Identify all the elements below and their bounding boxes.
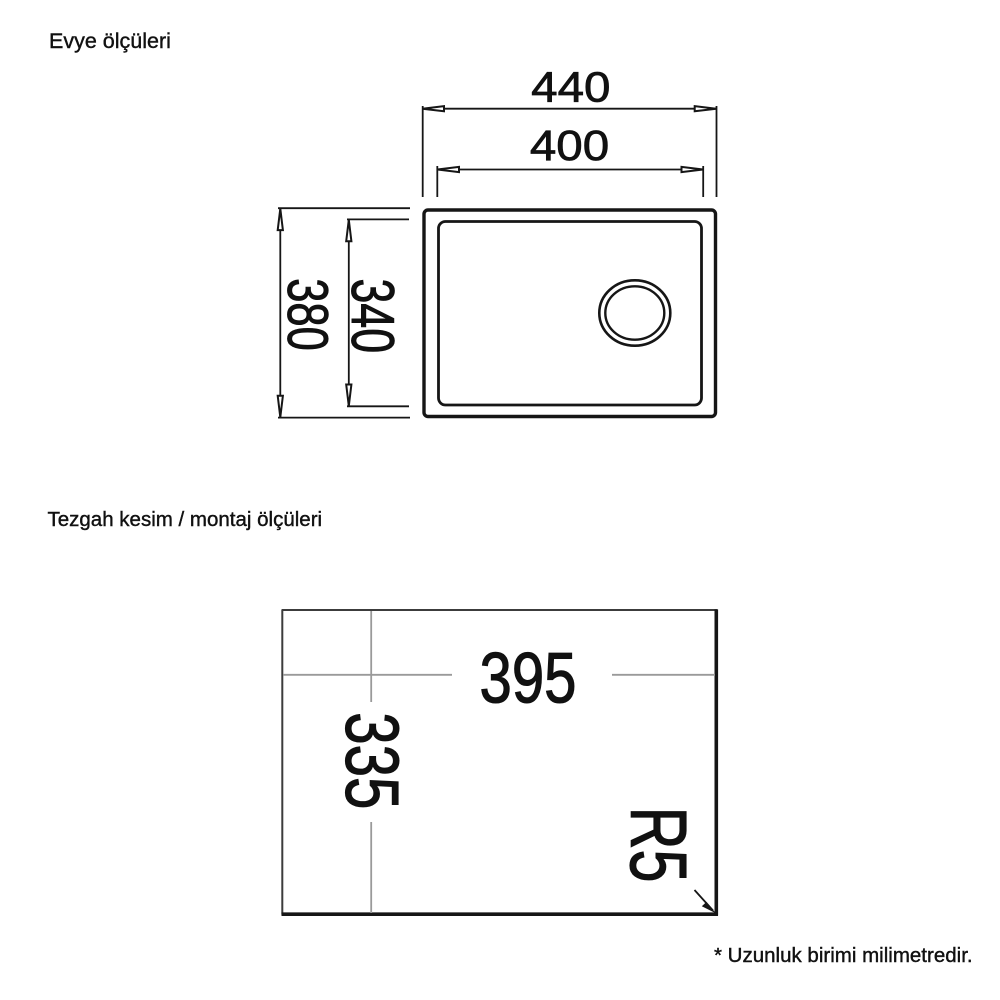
- svg-text:400: 400: [530, 121, 609, 169]
- svg-text:440: 440: [531, 63, 610, 111]
- svg-text:R5: R5: [614, 807, 702, 883]
- svg-text:335: 335: [329, 712, 413, 809]
- svg-text:395: 395: [480, 638, 577, 718]
- svg-text:380: 380: [276, 278, 340, 350]
- svg-text:340: 340: [338, 278, 405, 353]
